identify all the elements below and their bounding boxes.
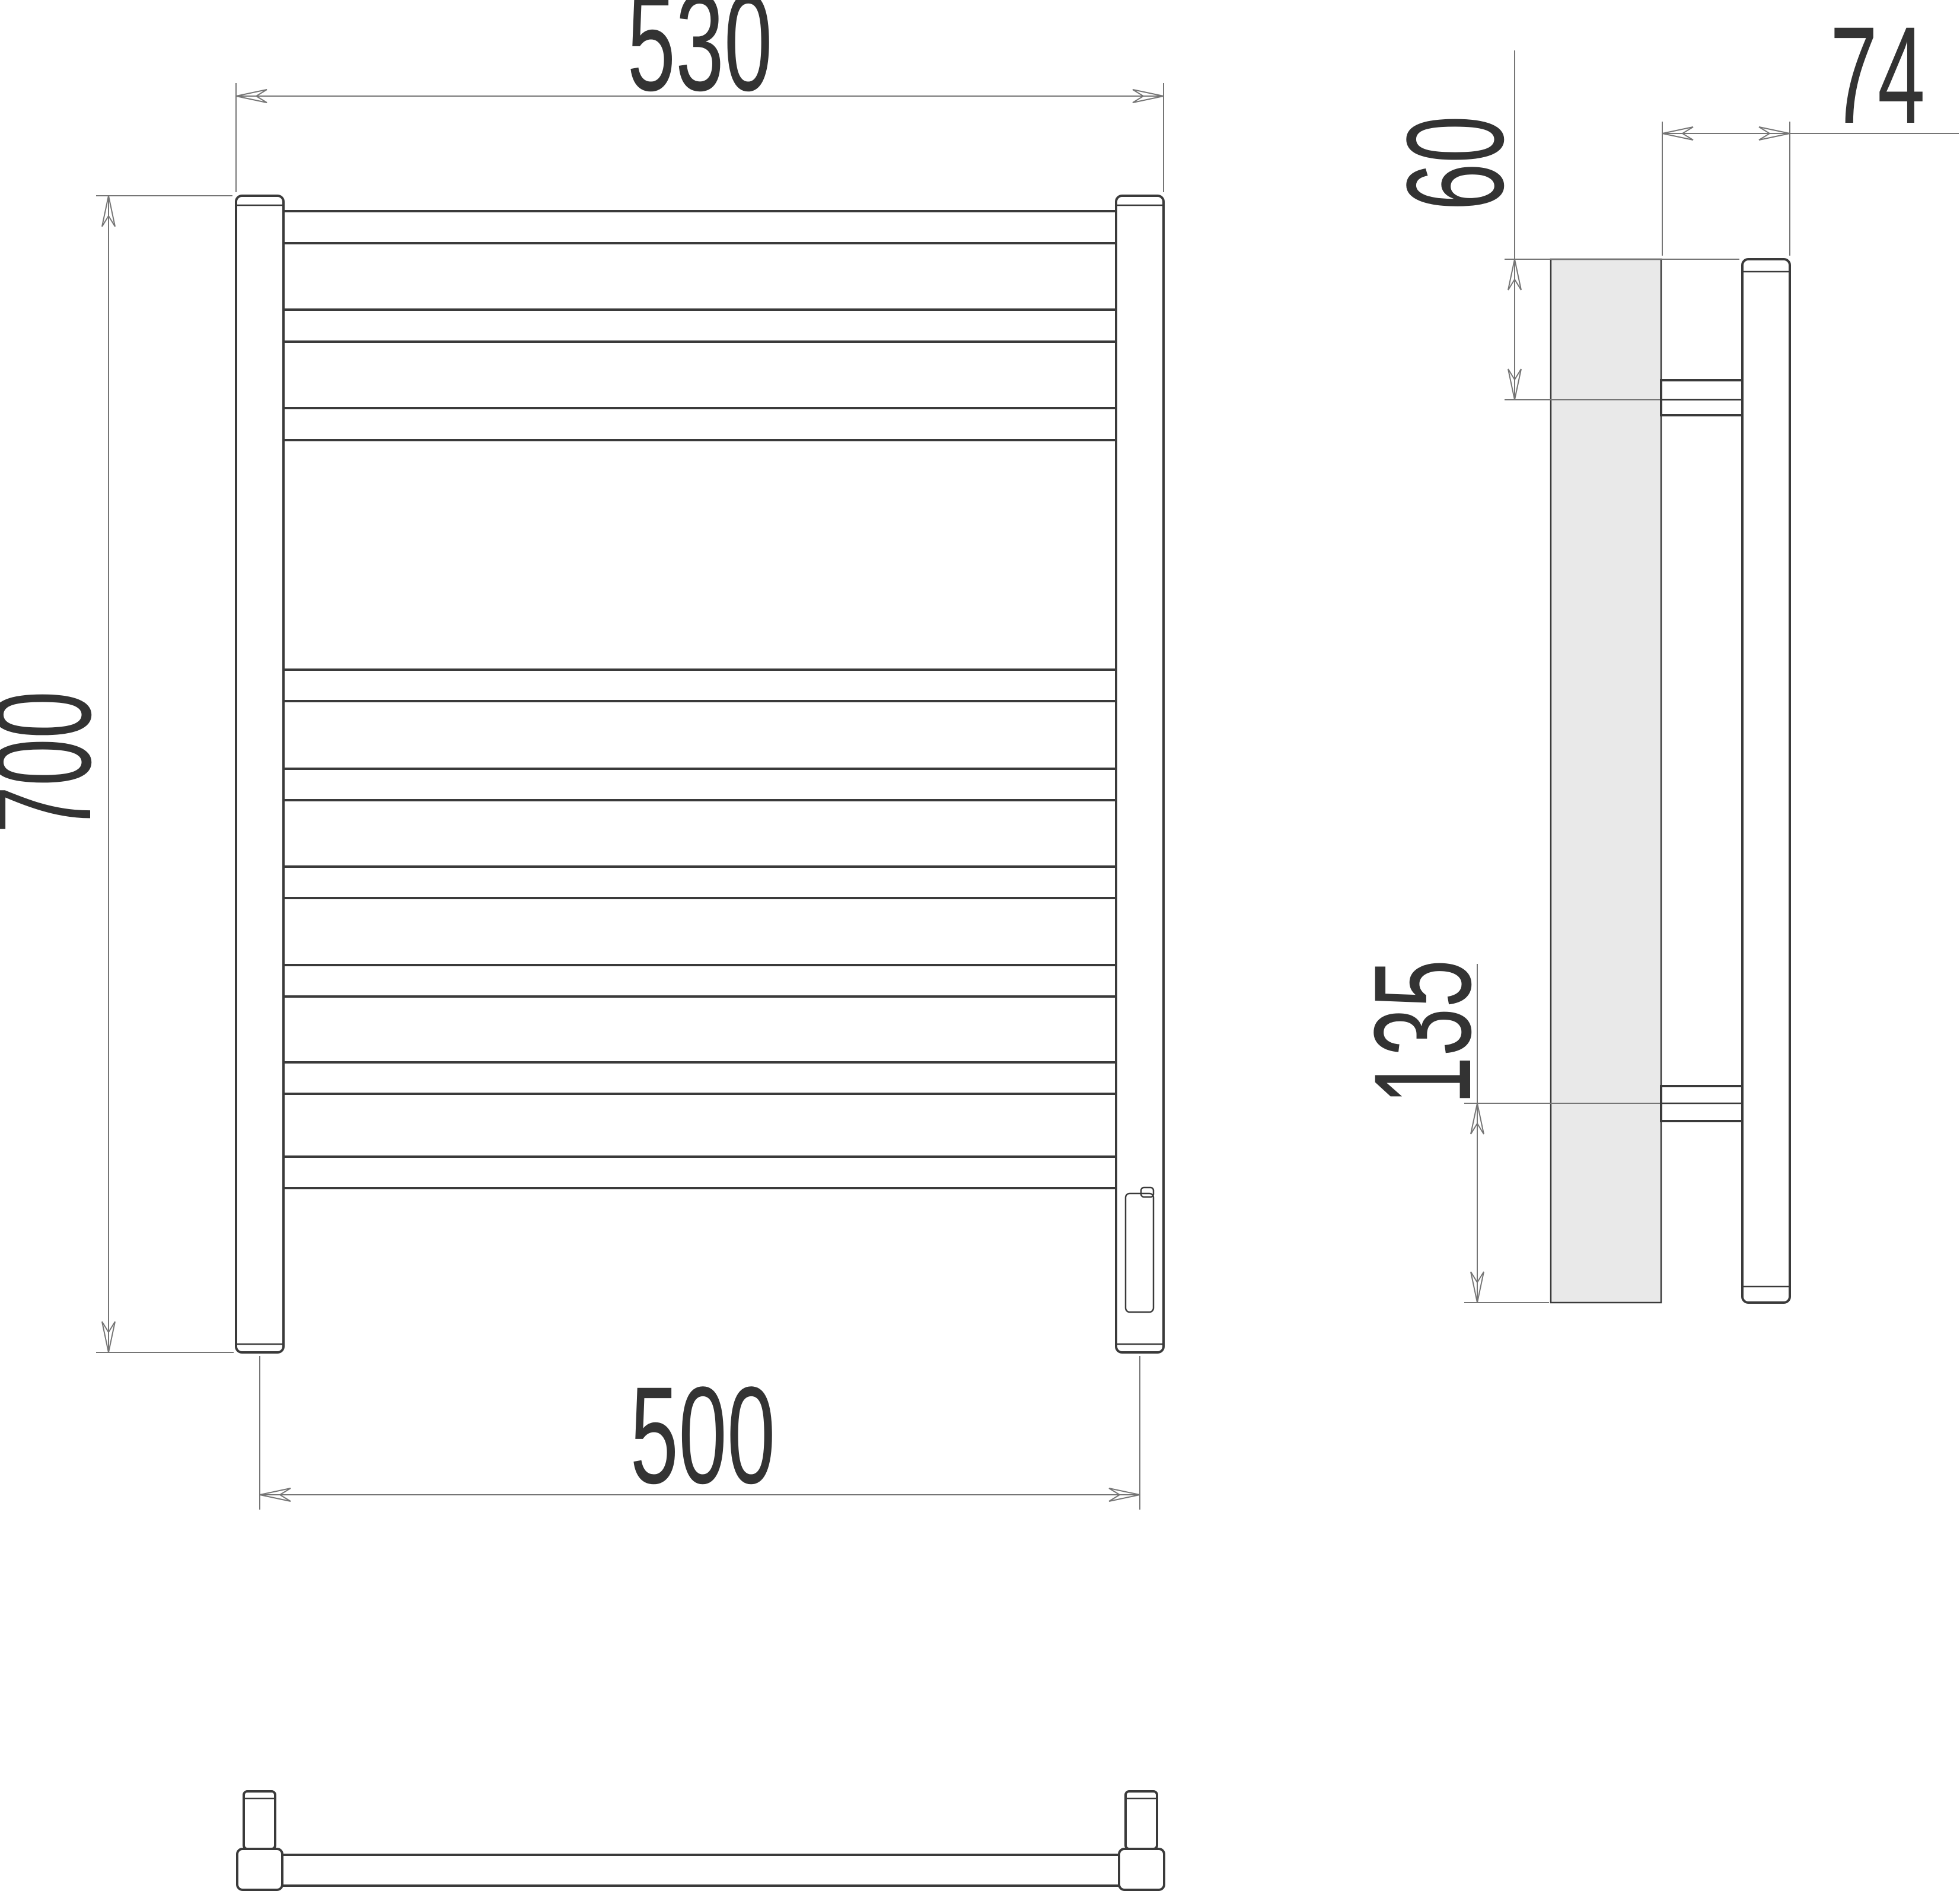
dimension-depth: 74 bbox=[1662, 0, 1959, 256]
dimension-overall-width: 530 bbox=[236, 0, 1164, 192]
dimension-label-60: 60 bbox=[1378, 116, 1532, 211]
wall-section bbox=[1551, 259, 1661, 1303]
dimension-overall-height: 700 bbox=[0, 196, 234, 1352]
dimension-mounting-width: 500 bbox=[260, 1356, 1140, 1513]
right-bracket-plan bbox=[1119, 1791, 1164, 1890]
post-cap-lines bbox=[236, 205, 1164, 1344]
dimension-label-530: 530 bbox=[627, 0, 773, 120]
dimension-label-74: 74 bbox=[1830, 0, 1925, 152]
side-view: 74 60 135 bbox=[1346, 0, 1959, 1303]
rung-lines bbox=[283, 211, 1116, 1188]
bottom-bracket-arm bbox=[1661, 1086, 1742, 1121]
right-post bbox=[1116, 196, 1164, 1352]
top-bracket-arm bbox=[1661, 380, 1742, 415]
left-post bbox=[236, 196, 283, 1352]
dimension-label-135: 135 bbox=[1346, 960, 1500, 1105]
towel-rail-technical-drawing: 530 700 500 bbox=[0, 0, 1960, 1891]
front-view: 530 700 500 bbox=[0, 0, 1164, 1513]
drawing-canvas: 530 700 500 bbox=[0, 0, 1960, 1891]
post-side-profile bbox=[1742, 259, 1790, 1303]
plan-view bbox=[237, 1791, 1164, 1890]
rail-bar-plan bbox=[282, 1855, 1119, 1886]
left-bracket-plan bbox=[237, 1791, 282, 1890]
dimension-label-700: 700 bbox=[0, 691, 120, 833]
extension-lines bbox=[1662, 122, 1790, 256]
dimension-label-500: 500 bbox=[630, 1358, 776, 1513]
